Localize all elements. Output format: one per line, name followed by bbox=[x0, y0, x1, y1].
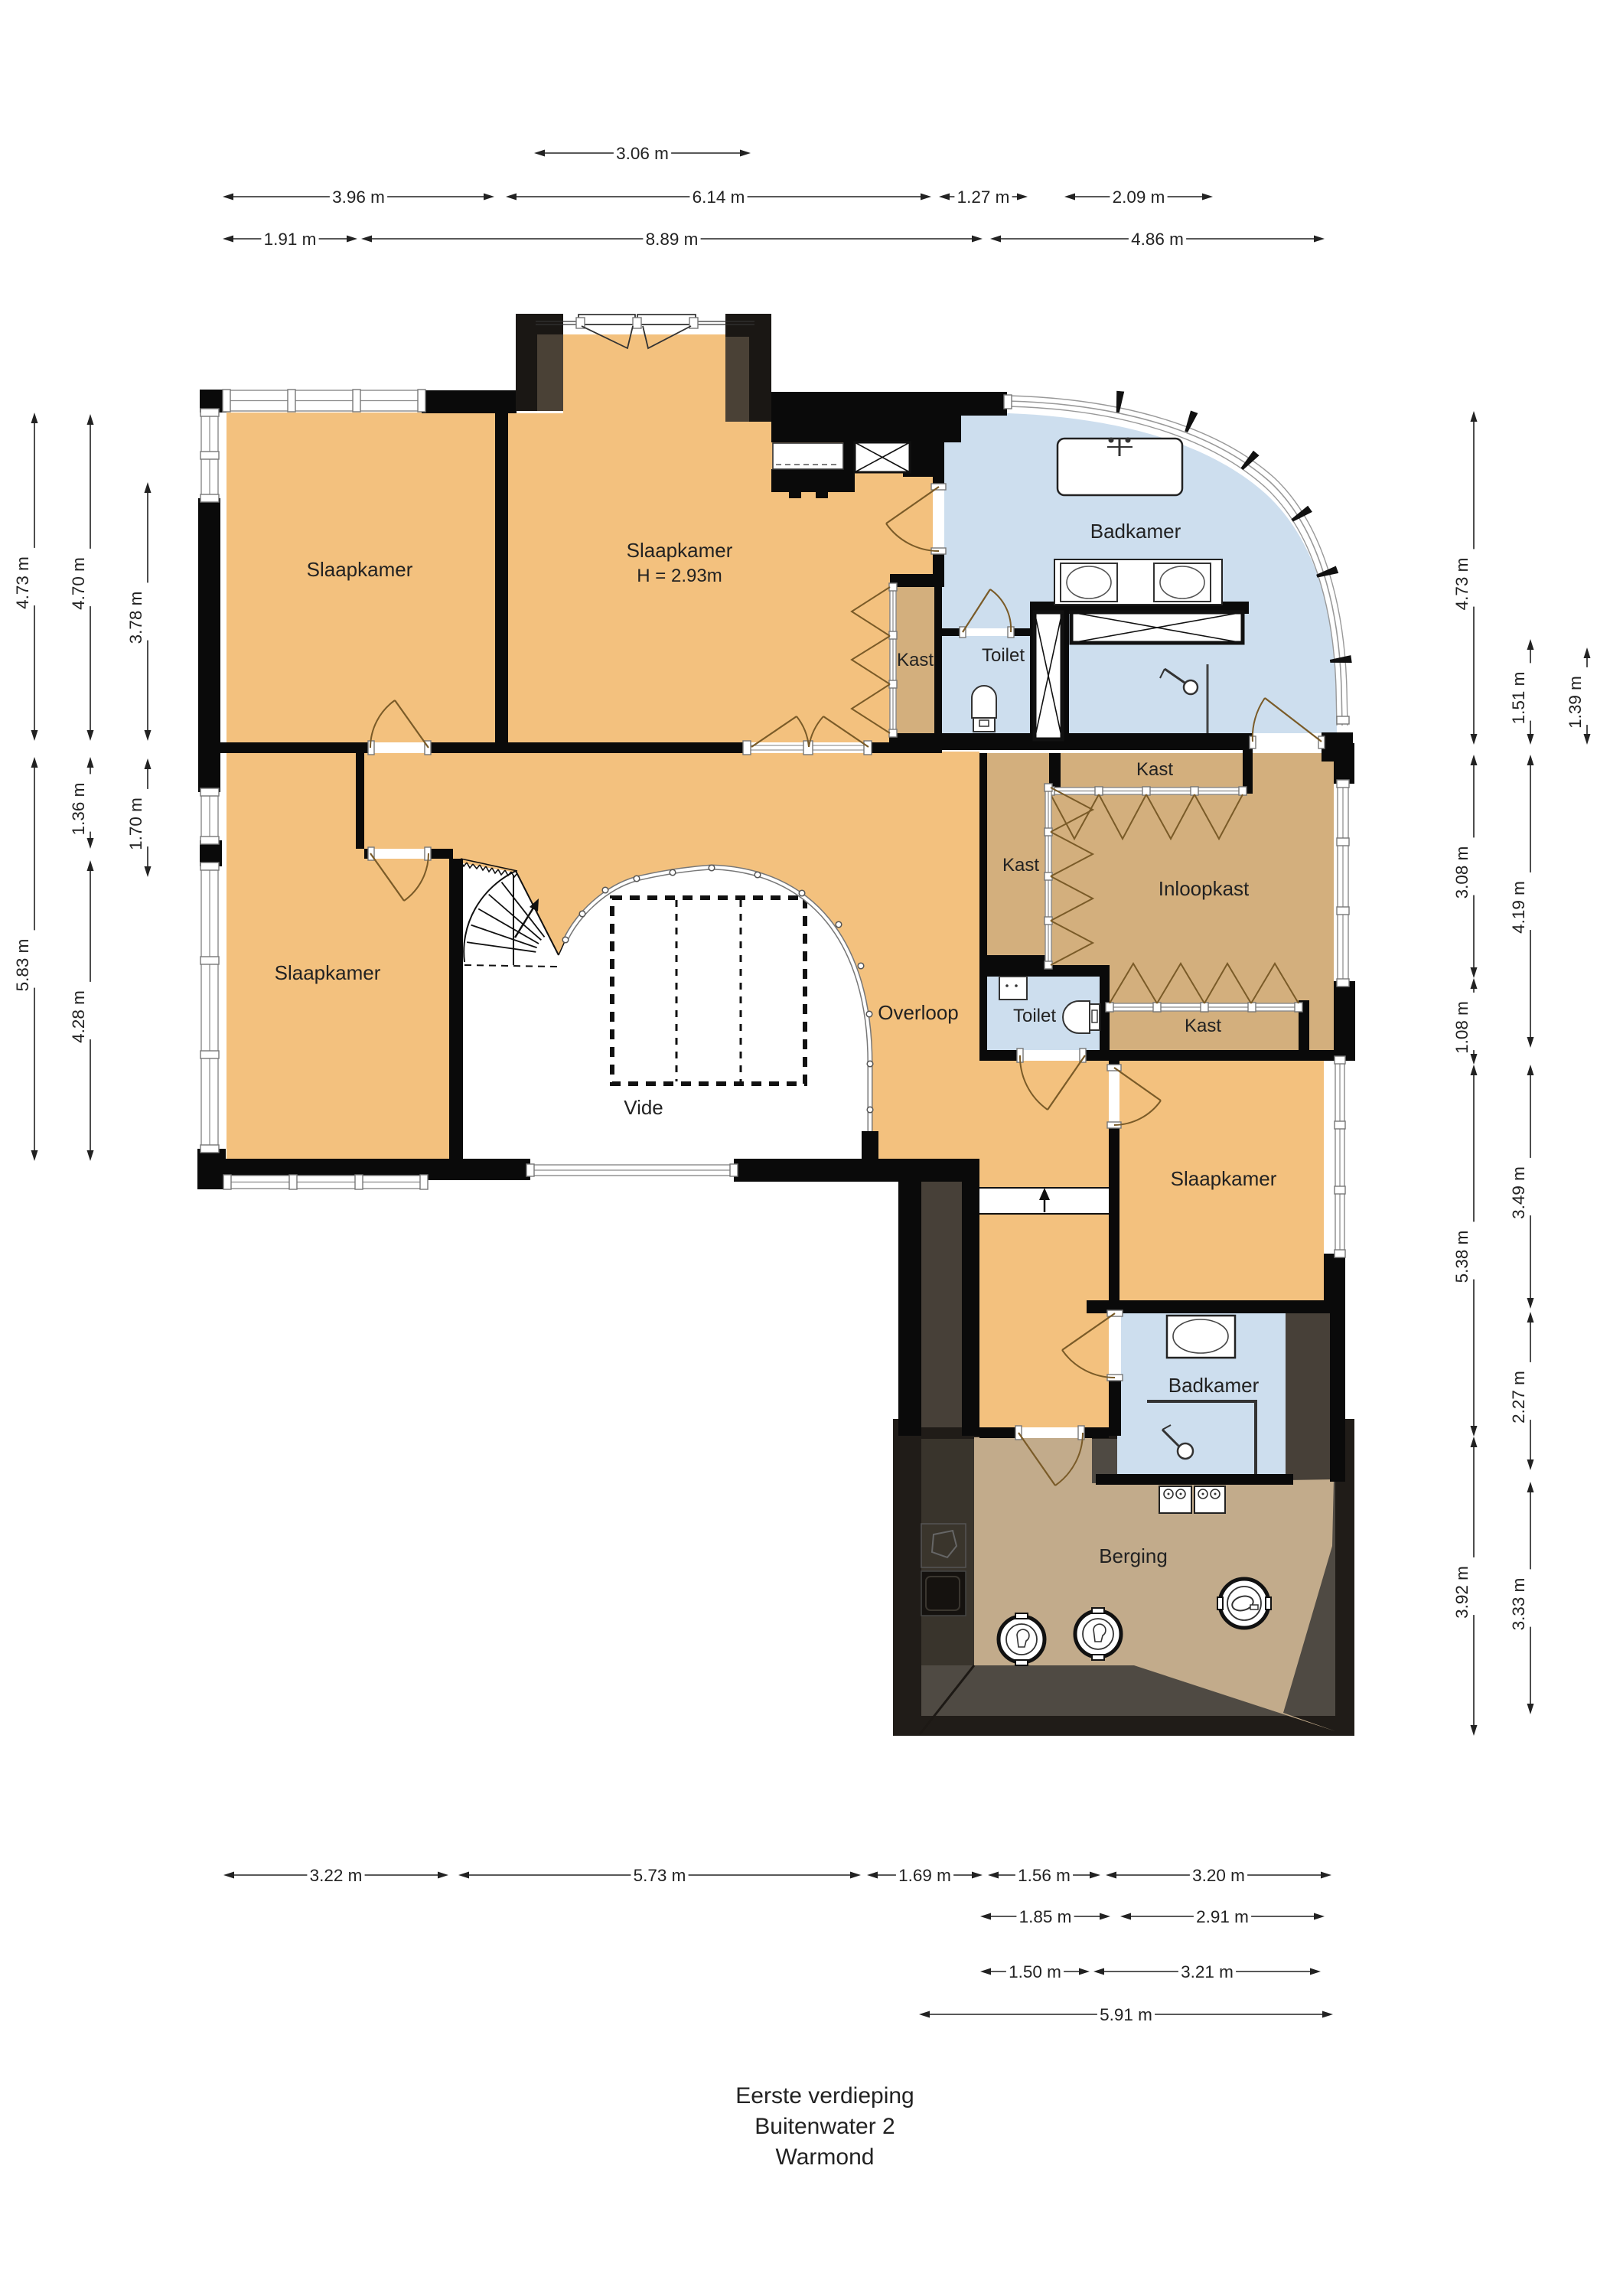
svg-text:1.51 m: 1.51 m bbox=[1509, 672, 1528, 725]
svg-text:3.96 m: 3.96 m bbox=[332, 188, 385, 207]
svg-text:3.49 m: 3.49 m bbox=[1509, 1166, 1528, 1219]
svg-text:Eerste verdieping: Eerste verdieping bbox=[735, 2083, 914, 2108]
svg-text:Berging: Berging bbox=[1099, 1544, 1168, 1567]
svg-text:Buitenwater 2: Buitenwater 2 bbox=[754, 2114, 895, 2139]
svg-text:1.85 m: 1.85 m bbox=[1019, 1907, 1072, 1926]
svg-text:Inloopkast: Inloopkast bbox=[1159, 877, 1250, 900]
svg-text:5.73 m: 5.73 m bbox=[634, 1866, 686, 1885]
svg-text:Toilet: Toilet bbox=[1013, 1006, 1056, 1026]
svg-text:Warmond: Warmond bbox=[776, 2144, 875, 2170]
svg-text:4.73 m: 4.73 m bbox=[13, 556, 32, 609]
svg-text:4.73 m: 4.73 m bbox=[1452, 558, 1471, 611]
svg-text:3.92 m: 3.92 m bbox=[1452, 1566, 1471, 1619]
svg-text:3.22 m: 3.22 m bbox=[310, 1866, 363, 1885]
svg-text:4.70 m: 4.70 m bbox=[69, 557, 88, 610]
svg-text:1.08 m: 1.08 m bbox=[1452, 1001, 1471, 1054]
svg-text:3.33 m: 3.33 m bbox=[1509, 1578, 1528, 1631]
svg-text:Slaapkamer: Slaapkamer bbox=[275, 961, 381, 984]
svg-text:Kast: Kast bbox=[1002, 855, 1039, 876]
svg-text:3.08 m: 3.08 m bbox=[1452, 846, 1471, 899]
svg-text:H = 2.93m: H = 2.93m bbox=[637, 566, 722, 586]
svg-text:3.06 m: 3.06 m bbox=[616, 144, 669, 163]
svg-text:1.69 m: 1.69 m bbox=[898, 1866, 951, 1885]
svg-text:Slaapkamer: Slaapkamer bbox=[1171, 1167, 1277, 1190]
svg-text:Badkamer: Badkamer bbox=[1168, 1374, 1260, 1397]
svg-text:Kast: Kast bbox=[1185, 1016, 1221, 1036]
svg-text:8.89 m: 8.89 m bbox=[646, 230, 699, 249]
svg-text:4.19 m: 4.19 m bbox=[1509, 881, 1528, 934]
svg-text:1.56 m: 1.56 m bbox=[1018, 1866, 1071, 1885]
svg-text:1.36 m: 1.36 m bbox=[69, 783, 88, 836]
svg-text:5.91 m: 5.91 m bbox=[1100, 2005, 1152, 2024]
svg-text:1.39 m: 1.39 m bbox=[1566, 676, 1585, 729]
svg-text:Kast: Kast bbox=[897, 650, 934, 670]
svg-text:2.09 m: 2.09 m bbox=[1113, 188, 1165, 207]
svg-text:1.27 m: 1.27 m bbox=[957, 188, 1010, 207]
svg-text:3.20 m: 3.20 m bbox=[1192, 1866, 1245, 1885]
svg-text:5.83 m: 5.83 m bbox=[13, 939, 32, 992]
svg-text:3.78 m: 3.78 m bbox=[126, 592, 145, 644]
svg-text:Slaapkamer: Slaapkamer bbox=[307, 558, 413, 581]
svg-text:Kast: Kast bbox=[1136, 759, 1173, 780]
svg-text:3.21 m: 3.21 m bbox=[1181, 1962, 1234, 1981]
svg-text:1.70 m: 1.70 m bbox=[126, 797, 145, 850]
svg-text:2.91 m: 2.91 m bbox=[1196, 1907, 1249, 1926]
svg-text:5.38 m: 5.38 m bbox=[1452, 1231, 1471, 1283]
svg-text:Toilet: Toilet bbox=[982, 645, 1025, 666]
svg-text:Slaapkamer: Slaapkamer bbox=[627, 539, 733, 562]
svg-text:2.27 m: 2.27 m bbox=[1509, 1371, 1528, 1424]
svg-text:4.28 m: 4.28 m bbox=[69, 990, 88, 1043]
svg-text:1.91 m: 1.91 m bbox=[264, 230, 317, 249]
svg-text:Overloop: Overloop bbox=[878, 1001, 959, 1024]
svg-text:Badkamer: Badkamer bbox=[1090, 520, 1181, 543]
svg-text:1.50 m: 1.50 m bbox=[1009, 1962, 1061, 1981]
svg-text:6.14 m: 6.14 m bbox=[693, 188, 745, 207]
svg-text:Vide: Vide bbox=[624, 1096, 663, 1119]
svg-text:4.86 m: 4.86 m bbox=[1131, 230, 1184, 249]
